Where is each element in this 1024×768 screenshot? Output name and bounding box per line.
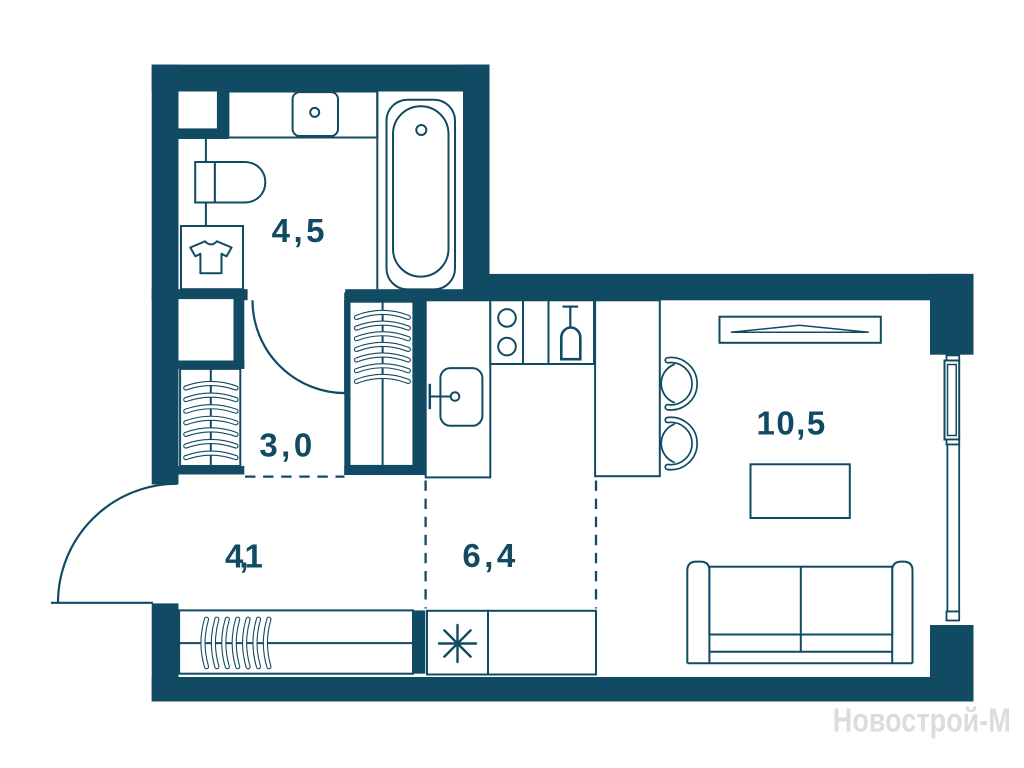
svg-text:Новострой-М: Новострой-М	[833, 702, 1011, 739]
svg-text:6,4: 6,4	[462, 537, 518, 574]
svg-text:10,5: 10,5	[756, 404, 826, 441]
svg-text:4,5: 4,5	[272, 212, 328, 249]
svg-text:4,1: 4,1	[225, 537, 263, 574]
svg-text:3,0: 3,0	[259, 426, 315, 463]
